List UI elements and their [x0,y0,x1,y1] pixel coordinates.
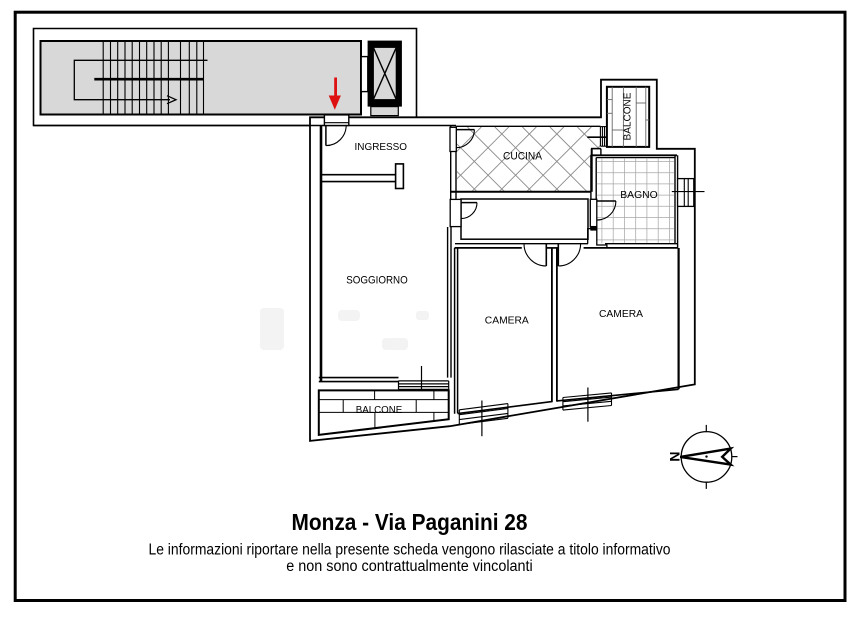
svg-text:BALCONE: BALCONE [356,405,403,416]
svg-text:CAMERA: CAMERA [485,316,529,327]
svg-text:Monza - Via Paganini 28: Monza - Via Paganini 28 [292,509,528,535]
svg-text:Le informazioni riportare nell: Le informazioni riportare nella presente… [149,542,671,559]
svg-text:CAMERA: CAMERA [599,309,643,320]
svg-text:BALCONE: BALCONE [623,92,634,140]
svg-text:e non sono contrattualmente vi: e non sono contrattualmente vincolanti [286,558,533,575]
svg-text:N: N [666,451,682,461]
svg-text:CUCINA: CUCINA [503,151,543,163]
svg-text:BAGNO: BAGNO [620,189,658,201]
svg-text:SOGGIORNO: SOGGIORNO [346,275,408,287]
svg-text:INGRESSO: INGRESSO [355,141,408,153]
